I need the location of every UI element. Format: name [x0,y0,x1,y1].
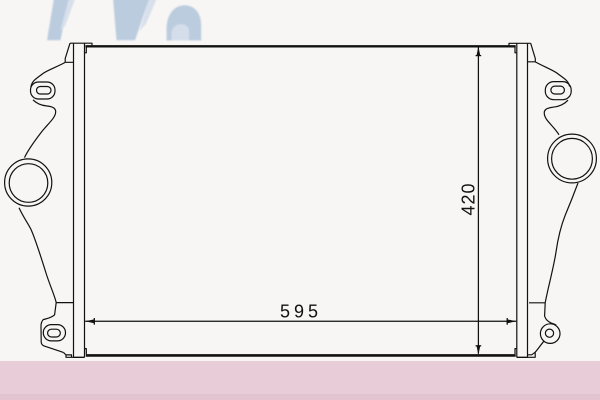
svg-text:420: 420 [458,182,478,215]
svg-text:595: 595 [280,301,322,321]
